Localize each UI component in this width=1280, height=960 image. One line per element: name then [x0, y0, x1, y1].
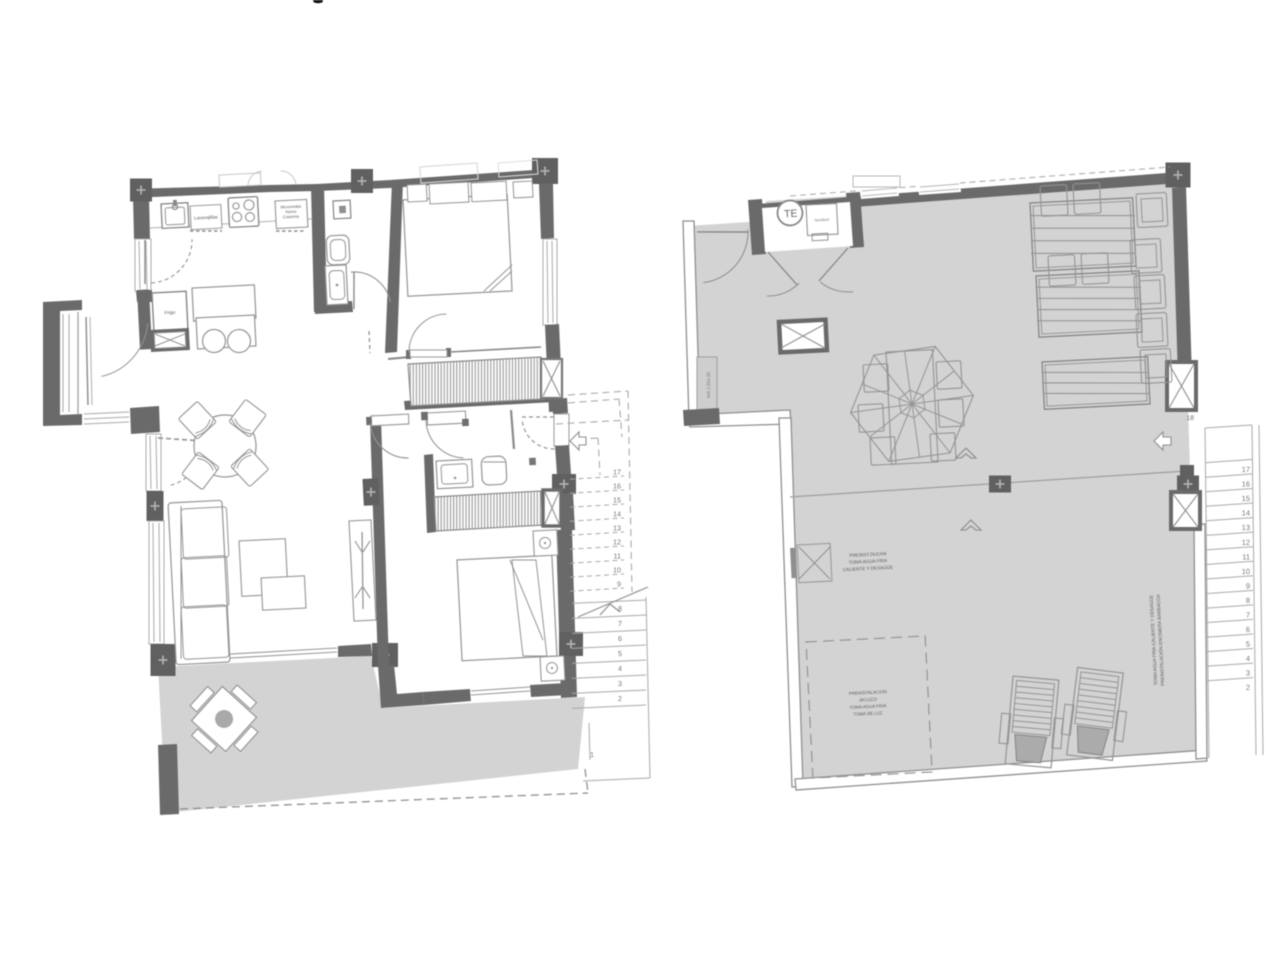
svg-text:lavadora: lavadora — [815, 218, 831, 223]
svg-text:5: 5 — [618, 649, 622, 658]
svg-text:9: 9 — [617, 580, 621, 589]
svg-text:6: 6 — [618, 634, 622, 643]
svg-text:8: 8 — [1246, 596, 1250, 605]
svg-text:4: 4 — [1246, 654, 1250, 663]
svg-text:2: 2 — [1246, 683, 1250, 692]
svg-text:7: 7 — [618, 619, 622, 628]
svg-text:6: 6 — [1246, 625, 1250, 634]
svg-text:10: 10 — [613, 566, 621, 575]
svg-text:2: 2 — [618, 694, 622, 703]
svg-text:13: 13 — [613, 524, 621, 533]
svg-text:16: 16 — [1242, 480, 1250, 489]
svg-text:12: 12 — [613, 538, 621, 547]
svg-text:3: 3 — [1246, 669, 1250, 678]
svg-text:14: 14 — [1242, 509, 1250, 518]
svg-text:3: 3 — [618, 679, 622, 688]
svg-text:10: 10 — [1242, 567, 1250, 576]
svg-text:15: 15 — [1242, 494, 1250, 503]
svg-text:Frigo: Frigo — [164, 310, 176, 317]
svg-text:7: 7 — [1246, 611, 1250, 620]
svg-text:4: 4 — [618, 664, 622, 673]
svg-text:1: 1 — [590, 750, 594, 759]
svg-text:18: 18 — [1186, 415, 1194, 422]
svg-text:17: 17 — [613, 468, 621, 477]
svg-text:12: 12 — [1242, 538, 1250, 547]
svg-text:JACUZZI: JACUZZI — [859, 697, 877, 703]
svg-text:17: 17 — [1242, 465, 1250, 474]
svg-text:5: 5 — [1246, 640, 1250, 649]
svg-text:TE: TE — [784, 208, 798, 221]
svg-text:13: 13 — [1242, 523, 1250, 532]
svg-text:11: 11 — [614, 552, 621, 561]
svg-text:9: 9 — [1246, 581, 1250, 590]
svg-text:15: 15 — [613, 496, 621, 505]
svg-text:Columna: Columna — [283, 214, 300, 220]
svg-text:14: 14 — [613, 510, 621, 519]
svg-text:16: 16 — [613, 482, 621, 491]
svg-text:11: 11 — [1242, 552, 1250, 561]
svg-text:A/A 1.50x.35: A/A 1.50x.35 — [706, 372, 711, 398]
